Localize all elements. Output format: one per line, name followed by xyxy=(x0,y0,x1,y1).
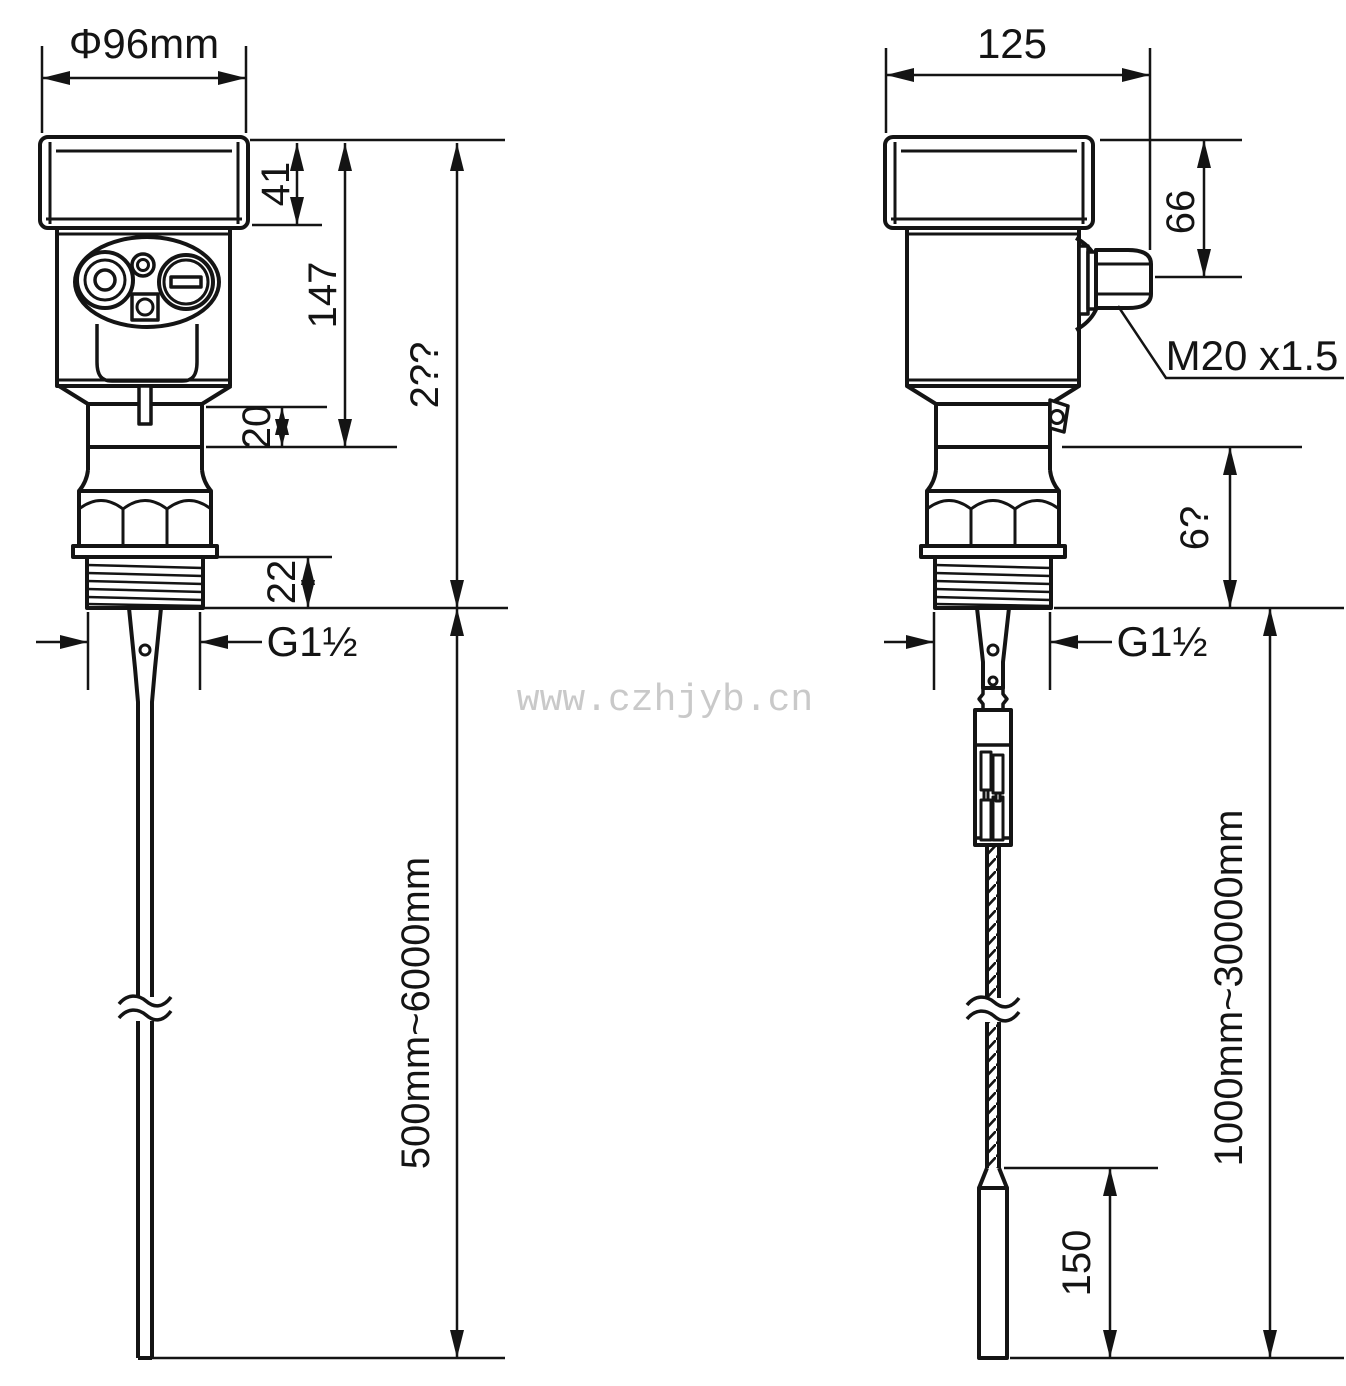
arrowhead xyxy=(906,635,934,649)
dim-label-process-connection: G1½ xyxy=(266,618,357,665)
dim-label-neck-height: 20 xyxy=(235,405,279,450)
arrowhead xyxy=(1197,249,1211,277)
arrowhead xyxy=(450,580,464,608)
dim-label-lower-section: 6? xyxy=(1173,506,1217,551)
dim-label-probe-range: 500mm~6000mm xyxy=(394,857,438,1169)
dim-housing-height: 147 xyxy=(301,143,352,447)
dim-neck-height: 20 xyxy=(206,405,397,450)
front-lid xyxy=(40,137,248,228)
arrowhead xyxy=(886,68,914,82)
rod-outline xyxy=(129,608,161,1358)
dim-cap-height: 41 xyxy=(252,143,322,225)
clamp-slot-1 xyxy=(981,752,991,790)
arrowhead xyxy=(450,1330,464,1358)
dim-process-connection-front: G1½ xyxy=(36,612,358,690)
arrowhead xyxy=(1050,635,1078,649)
dim-label-cable-entry-offset: 66 xyxy=(1159,190,1203,235)
cone-hole-1 xyxy=(988,645,998,655)
arrowhead xyxy=(200,635,228,649)
level-sensor-dimension-drawing: Φ96mm 41 147 20 22 xyxy=(0,0,1346,1386)
dim-cap-diameter: Φ96mm xyxy=(42,20,246,133)
mount-lug xyxy=(1050,400,1068,432)
arrowhead xyxy=(450,143,464,171)
arrowhead xyxy=(1263,608,1277,636)
dim-label-thread-length: 22 xyxy=(260,560,304,605)
arrowhead xyxy=(450,608,464,636)
arrowhead xyxy=(1103,1168,1117,1196)
dim-label-housing-height: 147 xyxy=(301,262,345,329)
clamp-slot-4 xyxy=(993,797,1003,840)
arrowhead xyxy=(1197,140,1211,168)
clamp-slot-3 xyxy=(993,755,1003,793)
faceplate-boss xyxy=(97,324,197,381)
housing-edge-lines xyxy=(907,234,1079,380)
clamp-stub-1 xyxy=(984,790,988,800)
cable-break-symbol xyxy=(967,997,1019,1022)
arrowhead xyxy=(1122,68,1150,82)
counterweight-body xyxy=(979,1188,1007,1358)
cable-gland-body xyxy=(1096,250,1151,308)
front-view-device xyxy=(40,137,248,1358)
arrowhead xyxy=(42,71,70,85)
housing-body xyxy=(907,228,1079,386)
side-lid xyxy=(885,137,1093,228)
counterweight-taper xyxy=(979,1168,1007,1188)
cone-hole-2 xyxy=(989,677,997,685)
front-rod-probe xyxy=(119,608,171,1358)
dim-cable-entry-thread: M20 x1.5 xyxy=(1118,306,1344,379)
dim-label-head-total: 2?? xyxy=(403,342,447,409)
arrowhead xyxy=(338,419,352,447)
arrowhead xyxy=(60,635,88,649)
arrowhead xyxy=(1103,1330,1117,1358)
arrowhead xyxy=(218,71,246,85)
dim-head-total-height: 2?? xyxy=(403,143,464,608)
dim-label-cable-entry-thread: M20 x1.5 xyxy=(1166,332,1339,379)
arrowhead xyxy=(1223,580,1237,608)
dim-label-housing-width: 125 xyxy=(977,20,1047,67)
technical-drawing-page: Φ96mm 41 147 20 22 xyxy=(0,0,1346,1386)
side-cable-probe xyxy=(967,608,1019,1358)
dim-lower-section-height: 6? xyxy=(1062,447,1302,608)
dim-probe-range: 500mm~6000mm xyxy=(141,608,505,1358)
clamp-slot-2 xyxy=(981,800,991,840)
dim-lines xyxy=(141,608,505,1358)
side-housing xyxy=(907,228,1151,386)
dim-label-cable-range: 1000mm~30000mm xyxy=(1207,810,1251,1167)
rod-hole xyxy=(140,645,150,655)
clamp-stub-2 xyxy=(996,793,1000,801)
dim-process-connection-side: G1½ xyxy=(884,612,1208,690)
dim-label-cap-diameter: Φ96mm xyxy=(69,20,219,67)
dim-thread-length: 22 xyxy=(212,557,332,608)
watermark: www.czhjyb.cn xyxy=(517,679,813,722)
dim-label-process-connection: G1½ xyxy=(1116,618,1207,665)
connector-waist xyxy=(979,688,1007,710)
front-seal-tab xyxy=(139,386,151,424)
rod-break-symbol xyxy=(119,996,171,1021)
arrowhead xyxy=(1263,1330,1277,1358)
arrowhead xyxy=(338,143,352,171)
front-housing xyxy=(57,228,230,386)
arrowhead xyxy=(1223,447,1237,475)
dim-counterweight-length: 150 xyxy=(1004,1168,1158,1358)
dim-label-counterweight-length: 150 xyxy=(1055,1230,1099,1297)
dim-label-cap-height: 41 xyxy=(254,162,298,207)
